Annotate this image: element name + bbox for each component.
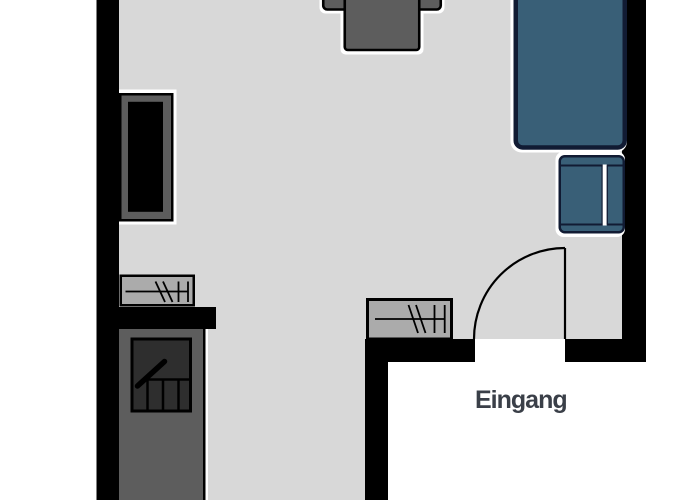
svg-text:Eingang: Eingang [475,386,567,414]
